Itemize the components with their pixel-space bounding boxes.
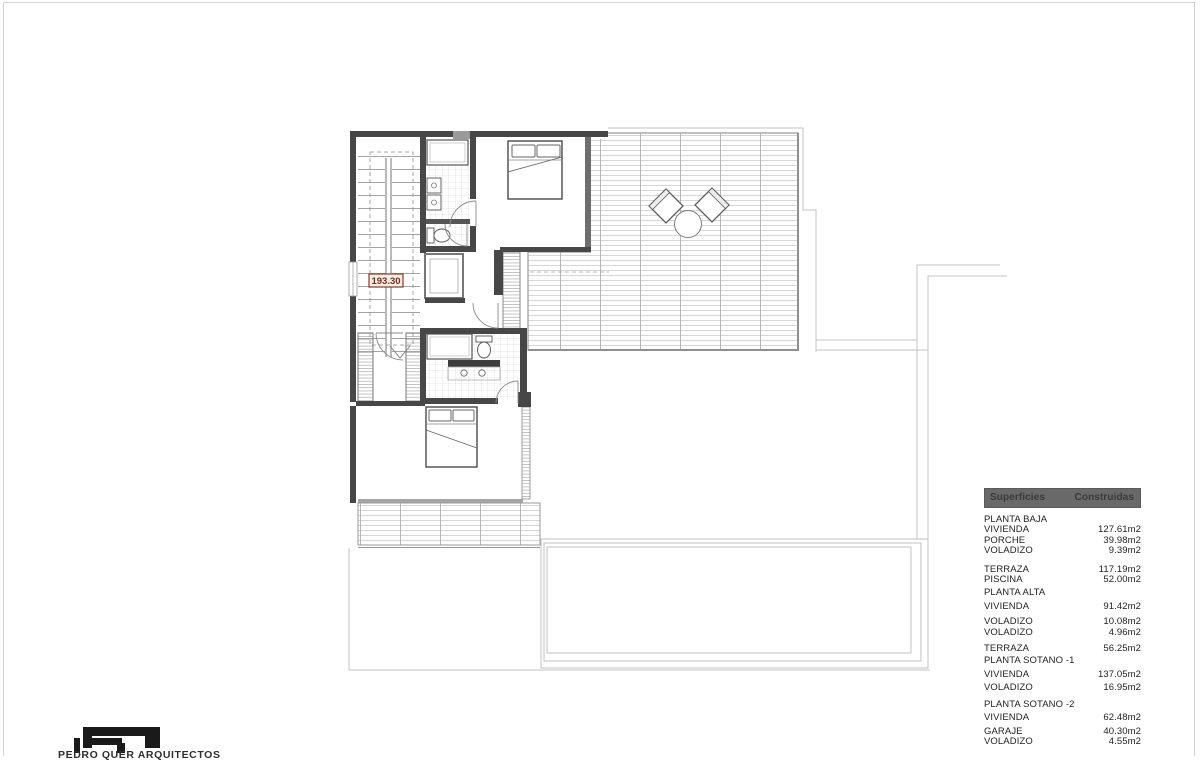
table-row: PISCINA52.00m2	[984, 575, 1141, 585]
area-label: VOLADIZO	[984, 628, 1033, 638]
area-value: 137.05m2	[1098, 670, 1141, 680]
area-label: TERRAZA	[984, 644, 1029, 654]
area-value: 62.48m2	[1103, 713, 1141, 723]
bedroom-1	[508, 141, 562, 199]
area-label: VOLADIZO	[984, 683, 1033, 693]
table-row: VIVIENDA62.48m2	[984, 713, 1141, 723]
area-label: VOLADIZO	[984, 546, 1033, 556]
area-measurement-label: 193.30	[369, 274, 403, 287]
area-label: PISCINA	[984, 575, 1023, 585]
table-row: PLANTA SOTANO -1	[984, 656, 1141, 666]
table-row: VOLADIZO4.96m2	[984, 628, 1141, 638]
area-value: 56.25m2	[1103, 644, 1141, 654]
area-label: PLANTA SOTANO -1	[984, 656, 1074, 666]
sliding-glass-door	[522, 407, 530, 499]
staircase	[358, 145, 420, 360]
area-value: 9.39m2	[1109, 546, 1141, 556]
area-measurement-text: 193.30	[371, 276, 400, 287]
area-label: PLANTA ALTA	[984, 588, 1045, 598]
bathroom-middle	[426, 334, 520, 398]
area-label: VIVIENDA	[984, 602, 1029, 612]
walkway-strip	[503, 252, 520, 332]
table-row: VOLADIZO16.95m2	[984, 683, 1141, 693]
area-label: PLANTA SOTANO -2	[984, 700, 1074, 710]
area-label: VOLADIZO	[984, 737, 1033, 747]
table-row: PLANTA SOTANO -2	[984, 700, 1141, 710]
table-row: PLANTA ALTA	[984, 588, 1141, 598]
floor-plan-page: { "page": { "background": "#ffffff", "fr…	[0, 0, 1200, 755]
area-value: 4.55m2	[1109, 737, 1141, 747]
terrace-deck	[528, 133, 800, 352]
table-header-col1: Superficies	[990, 493, 1045, 503]
area-value: 52.00m2	[1103, 575, 1141, 585]
architect-logo-text: PEDRO QUER ARQUITECTOS	[58, 749, 221, 761]
area-value: 91.42m2	[1103, 602, 1141, 612]
architect-logo: PEDRO QUER ARQUITECTOS	[58, 727, 278, 767]
area-value: 16.95m2	[1103, 683, 1141, 693]
table-header-col2: Construidas	[1075, 493, 1134, 503]
bed-icon	[426, 407, 477, 467]
bedroom-2	[426, 407, 530, 499]
table-row: VIVIENDA91.42m2	[984, 602, 1141, 612]
porch-deck	[358, 499, 540, 548]
window	[349, 262, 357, 296]
area-value: 4.96m2	[1109, 628, 1141, 638]
pool-outline	[541, 539, 928, 668]
closet	[425, 254, 463, 298]
corridor	[425, 252, 520, 332]
areas-summary-table: Superficies Construidas PLANTA BAJA VIVI…	[984, 488, 1141, 747]
table-row: TERRAZA56.25m2	[984, 644, 1141, 654]
table-row: VOLADIZO4.55m2	[984, 737, 1141, 747]
round-table	[675, 211, 702, 238]
area-label: VIVIENDA	[984, 670, 1029, 680]
table-header: Superficies Construidas	[984, 488, 1141, 508]
area-label: VIVIENDA	[984, 713, 1029, 723]
table-row: VIVIENDA137.05m2	[984, 670, 1141, 680]
bed-icon	[508, 141, 562, 199]
table-row: VOLADIZO9.39m2	[984, 546, 1141, 556]
